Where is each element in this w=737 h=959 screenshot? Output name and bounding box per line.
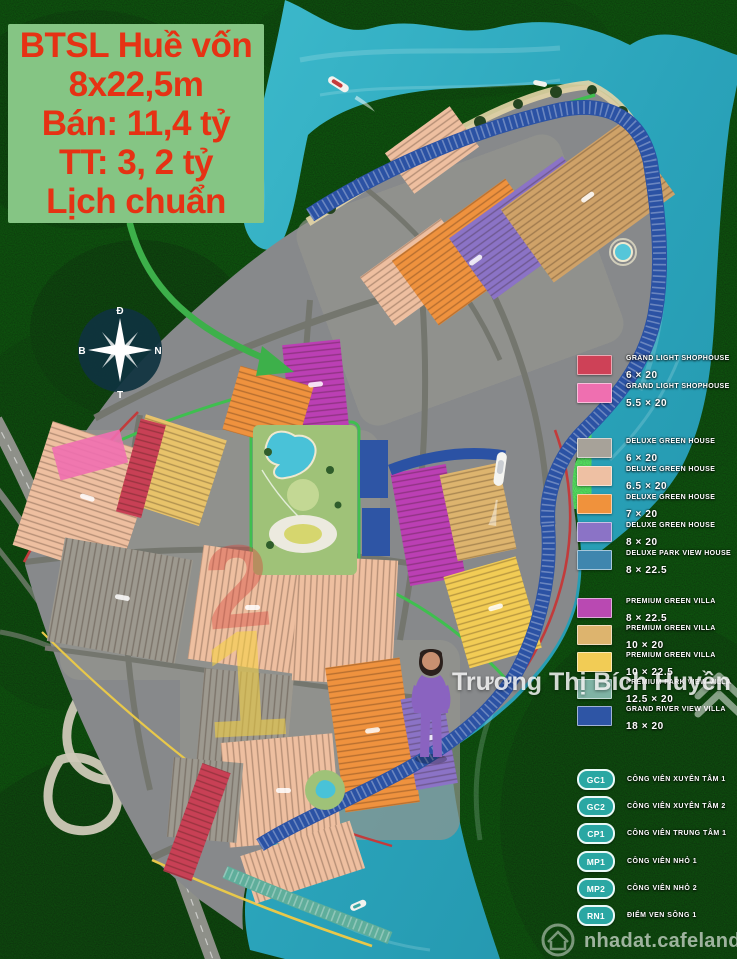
legend-item-name: DELUXE GREEN HOUSE [626, 494, 715, 501]
listing-info-box: BTSL Huề vốn 8x22,5m Bán: 11,4 tỷ TT: 3,… [8, 24, 264, 223]
legend-swatch [577, 383, 612, 403]
compass-top-label: Đ [116, 306, 123, 317]
park-badge-label: CÔNG VIÊN TRUNG TÂM 1 [627, 830, 727, 837]
legend-swatch [577, 625, 612, 645]
site-watermark-logo-icon [540, 922, 580, 958]
resort-pool [610, 239, 636, 265]
legend-badge-row: GC2 CÔNG VIÊN XUYÊN TÂM 2 [577, 796, 726, 817]
park-badge-label: CÔNG VIÊN NHỎ 1 [627, 858, 697, 865]
legend-item-size: 5.5 × 20 [626, 398, 667, 409]
legend-swatch [577, 550, 612, 570]
south-park [305, 770, 345, 810]
agent-avatar [405, 645, 457, 765]
park-badge: GC1 [577, 769, 615, 790]
masterplan-screenshot: Đ N T B BTSL Huề vốn 8x22,5m Bán: 11,4 t… [0, 0, 737, 959]
park-badge: MP1 [577, 851, 615, 872]
info-line: TT: 3, 2 tỷ [59, 143, 213, 182]
site-watermark: nhadat.cafeland.vn [584, 930, 737, 953]
legend-badge-row: MP1 CÔNG VIÊN NHỎ 1 [577, 851, 697, 872]
info-line: Bán: 11,4 tỷ [42, 104, 231, 143]
legend-swatch [577, 438, 612, 458]
legend-item-name: DELUXE GREEN HOUSE [626, 438, 715, 445]
legend-item-name: PREMIUM GREEN VILLA [626, 598, 716, 605]
legend-badge-row: MP2 CÔNG VIÊN NHỎ 2 [577, 878, 697, 899]
park-badge-label: CÔNG VIÊN XUYÊN TÂM 2 [627, 803, 726, 810]
legend-swatch [577, 706, 612, 726]
info-line: Lịch chuẩn [46, 182, 226, 221]
legend-badge-row: RN1 ĐIỂM VEN SÔNG 1 [577, 905, 697, 926]
compass-left-label: B [78, 346, 85, 357]
legend-item: DELUXE PARK VIEW HOUSE 8 × 22.5 [577, 542, 731, 579]
info-line: 8x22,5m [69, 65, 204, 104]
legend-item-name: GRAND LIGHT SHOPHOUSE [626, 355, 730, 362]
info-line: BTSL Huề vốn [20, 26, 253, 65]
legend-item-name: GRAND LIGHT SHOPHOUSE [626, 383, 730, 390]
legend-item-name: PREMIUM GREEN VILLA [626, 652, 716, 659]
legend-swatch [577, 355, 612, 375]
legend-item-name: PREMIUM GREEN VILLA [626, 625, 716, 632]
legend-swatch [577, 522, 612, 542]
legend-item-size: 8 × 22.5 [626, 565, 667, 576]
park-badge-label: CÔNG VIÊN XUYÊN TÂM 1 [627, 776, 726, 783]
park-badge: RN1 [577, 905, 615, 926]
legend-item: GRAND LIGHT SHOPHOUSE 5.5 × 20 [577, 375, 730, 412]
legend-badge-row: GC1 CÔNG VIÊN XUYÊN TÂM 1 [577, 769, 726, 790]
legend-badge-row: CP1 CÔNG VIÊN TRUNG TÂM 1 [577, 823, 727, 844]
zone-number-1-watermark: 1 [199, 606, 291, 762]
legend-item-name: DELUXE PARK VIEW HOUSE [626, 550, 731, 557]
agent-name-watermark: Trương Thị Bích Huyền [452, 668, 731, 697]
legend-item-name: DELUXE GREEN HOUSE [626, 466, 715, 473]
legend-item-size: 18 × 20 [626, 721, 664, 732]
compass-bottom-label: T [117, 390, 123, 401]
legend-swatch [577, 598, 612, 618]
park-badge: CP1 [577, 823, 615, 844]
park-badge: GC2 [577, 796, 615, 817]
central-park [253, 425, 357, 575]
park-badge-label: ĐIỂM VEN SÔNG 1 [627, 912, 697, 919]
park-badge: MP2 [577, 878, 615, 899]
compass-right-label: N [154, 346, 161, 357]
legend-item-name: DELUXE GREEN HOUSE [626, 522, 715, 529]
park-badge-label: CÔNG VIÊN NHỎ 2 [627, 885, 697, 892]
legend-swatch [577, 494, 612, 514]
legend-swatch [577, 466, 612, 486]
